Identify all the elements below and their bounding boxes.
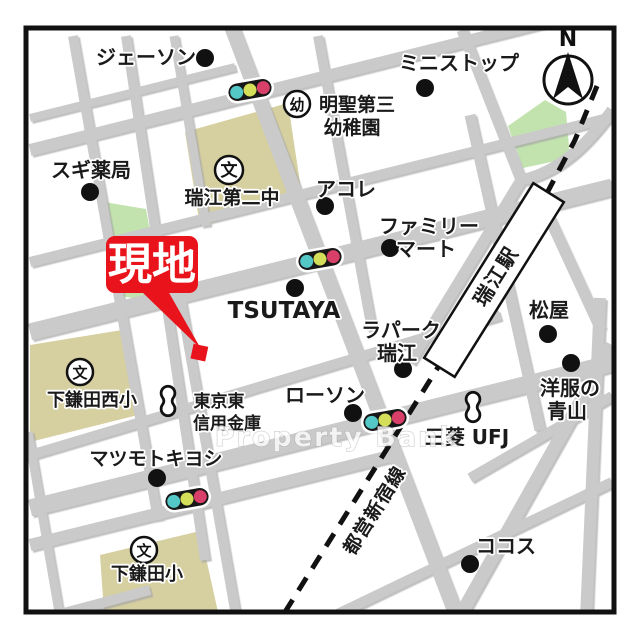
poi-dot-matsuya bbox=[539, 325, 557, 343]
map-canvas: 文 文 文 幼 ジェーソン ミニストップ 明聖第三 幼稚園 スギ薬局 瑞江第二中… bbox=[0, 0, 640, 640]
label-lapark-line1: ラパーク bbox=[361, 318, 441, 342]
compass-n-label: N bbox=[559, 27, 577, 52]
svg-text:文: 文 bbox=[72, 364, 88, 382]
label-lapark-line2: 瑞江 bbox=[377, 341, 417, 365]
site-marker-square bbox=[190, 344, 208, 362]
label-shimokamata: 下鎌田小 bbox=[111, 563, 183, 585]
label-tokyo-higashi-line1: 東京東 bbox=[194, 391, 245, 412]
svg-text:幼: 幼 bbox=[289, 96, 304, 114]
school-icon: 文 bbox=[215, 156, 243, 184]
label-meisei-line2: 幼稚園 bbox=[323, 116, 380, 139]
label-famima-line2: マート bbox=[396, 237, 456, 261]
watermark: Property Bank bbox=[215, 422, 460, 453]
poi-dot-ministop bbox=[416, 79, 434, 97]
label-famima-line1: ファミリー bbox=[379, 214, 479, 238]
bank-icon bbox=[466, 392, 480, 421]
label-ministop: ミニストップ bbox=[399, 51, 520, 75]
label-acole: アコレ bbox=[316, 177, 376, 201]
kindergarten-icon: 幼 bbox=[284, 91, 310, 117]
svg-text:文: 文 bbox=[221, 160, 239, 181]
svg-text:文: 文 bbox=[136, 542, 152, 560]
label-sugi: スギ薬局 bbox=[51, 158, 131, 182]
poi-dot-jason bbox=[196, 49, 214, 67]
label-matsumoto-kiyoshi: マツモトキヨシ bbox=[89, 448, 222, 470]
label-tsutaya: TSUTAYA bbox=[228, 298, 341, 324]
label-meisei-line1: 明聖第三 bbox=[319, 93, 395, 116]
label-matsuya: 松屋 bbox=[529, 298, 569, 322]
label-shimokamata-nishi: 下鎌田西小 bbox=[47, 389, 137, 411]
label-cocos: ココス bbox=[476, 534, 536, 558]
school-icon: 文 bbox=[67, 359, 93, 385]
poi-dot-sugi bbox=[81, 183, 99, 201]
label-jason: ジェーソン bbox=[96, 45, 196, 69]
poi-dot-matsukiyo bbox=[148, 469, 166, 487]
label-aoyama-line1: 洋服の bbox=[540, 376, 600, 400]
poi-dot-aoyama bbox=[562, 354, 580, 372]
site-marker-label: 現地 bbox=[108, 239, 196, 290]
bank-icon bbox=[161, 386, 175, 415]
label-aoyama-line2: 青山 bbox=[547, 399, 587, 423]
school-icon: 文 bbox=[131, 537, 157, 563]
poi-dot-tsutaya bbox=[286, 279, 304, 297]
label-lawson: ローソン bbox=[285, 383, 365, 407]
label-mizue-dai2: 瑞江第二中 bbox=[184, 186, 279, 209]
area-map: 文 文 文 幼 ジェーソン ミニストップ 明聖第三 幼稚園 スギ薬局 瑞江第二中… bbox=[0, 0, 640, 640]
